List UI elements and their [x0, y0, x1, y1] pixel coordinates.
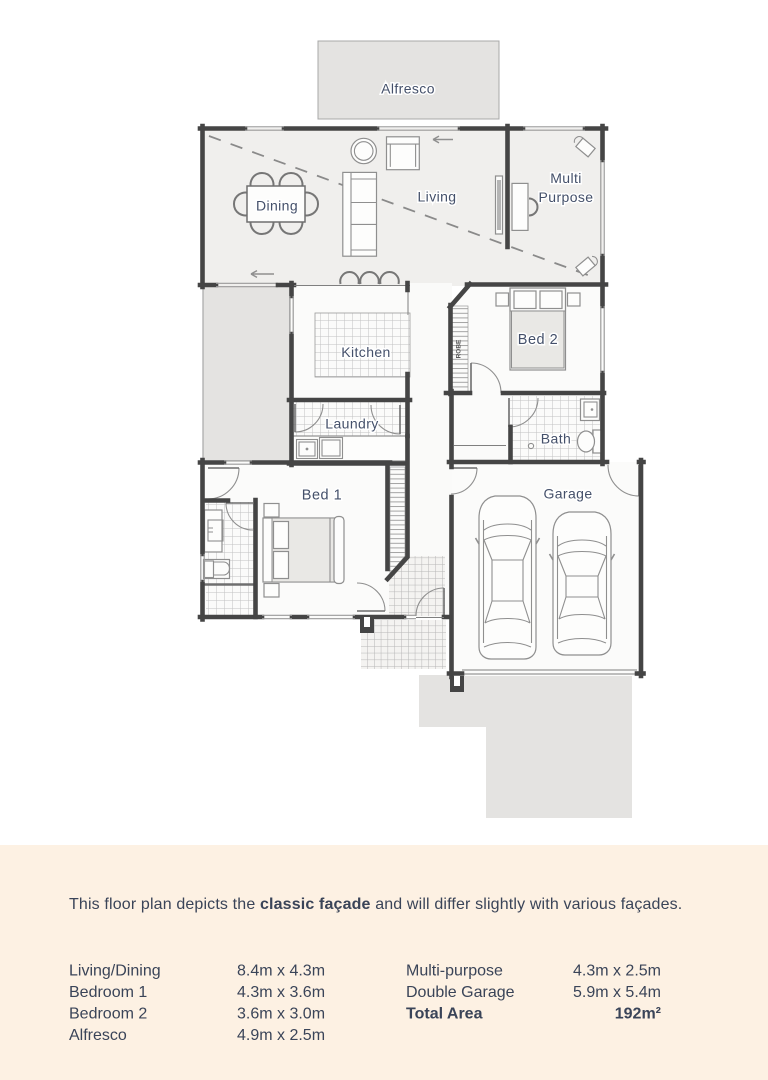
svg-text:4.9m x 2.5m: 4.9m x 2.5m	[237, 1027, 325, 1044]
svg-text:192m²: 192m²	[615, 1006, 661, 1023]
svg-text:Purpose: Purpose	[539, 189, 594, 205]
svg-text:Bed 1: Bed 1	[302, 488, 342, 504]
svg-text:Living: Living	[418, 189, 457, 205]
svg-text:4.3m x 2.5m: 4.3m x 2.5m	[573, 963, 661, 980]
svg-text:3.6m x 3.0m: 3.6m x 3.0m	[237, 1006, 325, 1023]
svg-text:Multi: Multi	[550, 170, 582, 186]
svg-text:Alfresco: Alfresco	[381, 81, 435, 97]
svg-text:Living/Dining: Living/Dining	[69, 963, 161, 980]
svg-text:Kitchen: Kitchen	[341, 344, 391, 360]
svg-text:Laundry: Laundry	[325, 416, 378, 432]
svg-text:Dining: Dining	[256, 198, 298, 214]
svg-text:Alfresco: Alfresco	[69, 1027, 127, 1044]
svg-text:Garage: Garage	[543, 486, 592, 502]
svg-text:Bedroom 2: Bedroom 2	[69, 1006, 147, 1023]
svg-text:4.3m x 3.6m: 4.3m x 3.6m	[237, 984, 325, 1001]
svg-text:8.4m x 4.3m: 8.4m x 4.3m	[237, 963, 325, 980]
svg-text:Double Garage: Double Garage	[406, 984, 515, 1001]
svg-text:Bedroom 1: Bedroom 1	[69, 984, 147, 1001]
svg-text:Bed 2: Bed 2	[518, 332, 558, 348]
svg-text:5.9m x 5.4m: 5.9m x 5.4m	[573, 984, 661, 1001]
svg-text:Bath: Bath	[541, 431, 571, 447]
svg-text:Total Area: Total Area	[406, 1006, 483, 1023]
svg-text:Multi-purpose: Multi-purpose	[406, 963, 503, 980]
svg-text:ROBE: ROBE	[456, 339, 463, 358]
svg-text:This floor plan depicts the cl: This floor plan depicts the classic faça…	[69, 896, 682, 913]
